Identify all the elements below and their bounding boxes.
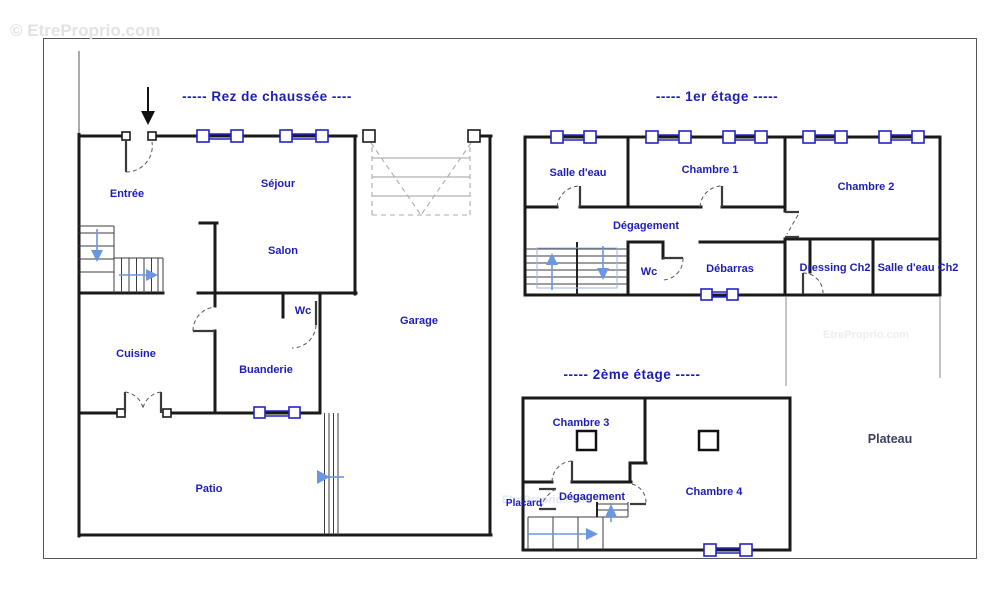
- room-label-chambre1: Chambre 1: [682, 164, 739, 176]
- room-label-second-degagement: Dégagement: [559, 491, 625, 503]
- dressing-door: [803, 273, 823, 294]
- room-label-buanderie: Buanderie: [239, 364, 293, 376]
- chambre3-door: [552, 461, 572, 482]
- garage-door: [363, 130, 480, 215]
- entry-stairs: [79, 226, 163, 293]
- ground-floor-title: ----- Rez de chaussée ----: [182, 89, 352, 104]
- room-label-placard: Placard: [506, 498, 542, 509]
- floorplan-page: © EtreProprio.com EtreProprio.com EtrePr…: [0, 0, 1007, 601]
- salle-deau-door: [557, 186, 580, 207]
- room-label-ground-wc: Wc: [295, 305, 312, 317]
- watermark-text: © EtreProprio.com: [10, 21, 160, 40]
- conduit-square-chambre4: [699, 431, 718, 450]
- salon-cuisine-door: [193, 307, 215, 331]
- room-label-dressing-ch2: Dressing Ch2: [800, 262, 871, 274]
- floorplan-drawing: © EtreProprio.com EtreProprio.com EtrePr…: [0, 0, 1007, 601]
- conduit-square-chambre3: [577, 431, 596, 450]
- first-wc-door: [663, 258, 683, 280]
- watermark-tile-right: EtreProprio.com: [823, 329, 909, 341]
- room-label-garage: Garage: [400, 315, 438, 327]
- room-label-plateau: Plateau: [868, 432, 912, 446]
- plan-frame: [44, 39, 977, 559]
- room-label-salon: Salon: [268, 245, 298, 257]
- room-label-first-wc: Wc: [641, 266, 658, 278]
- room-label-sejour: Séjour: [261, 178, 296, 190]
- room-label-salle-deau-ch2: Salle d'eau Ch2: [878, 262, 959, 274]
- first-floor-title: ----- 1er étage -----: [656, 89, 778, 104]
- room-label-cuisine: Cuisine: [116, 348, 156, 360]
- second-floor-plan: ----- 2ème étage -----: [506, 367, 912, 556]
- chambre1-door: [700, 186, 722, 207]
- entrance-arrow-icon: [141, 87, 155, 125]
- second-floor-title: ----- 2ème étage -----: [563, 367, 700, 382]
- ground-floor-plan: ----- Rez de chaussée ----: [79, 51, 491, 536]
- first-floor-stairs: [526, 242, 628, 295]
- first-floor-plan: ----- 1er étage -----: [525, 89, 958, 386]
- chambre4-door: [630, 484, 646, 504]
- room-label-entree: Entrée: [110, 188, 144, 200]
- room-label-first-degagement: Dégagement: [613, 220, 679, 232]
- room-label-chambre4: Chambre 4: [686, 486, 744, 498]
- patio-french-door: [117, 392, 171, 417]
- entrance-door: [122, 132, 156, 172]
- patio-side-stairs: [317, 413, 344, 535]
- room-label-salle-deau: Salle d'eau: [549, 167, 606, 179]
- room-label-chambre2: Chambre 2: [838, 181, 895, 193]
- room-label-chambre3: Chambre 3: [553, 417, 610, 429]
- room-label-debarras: Débarras: [706, 263, 754, 275]
- room-label-patio: Patio: [196, 483, 223, 495]
- chambre2-door: [785, 212, 799, 237]
